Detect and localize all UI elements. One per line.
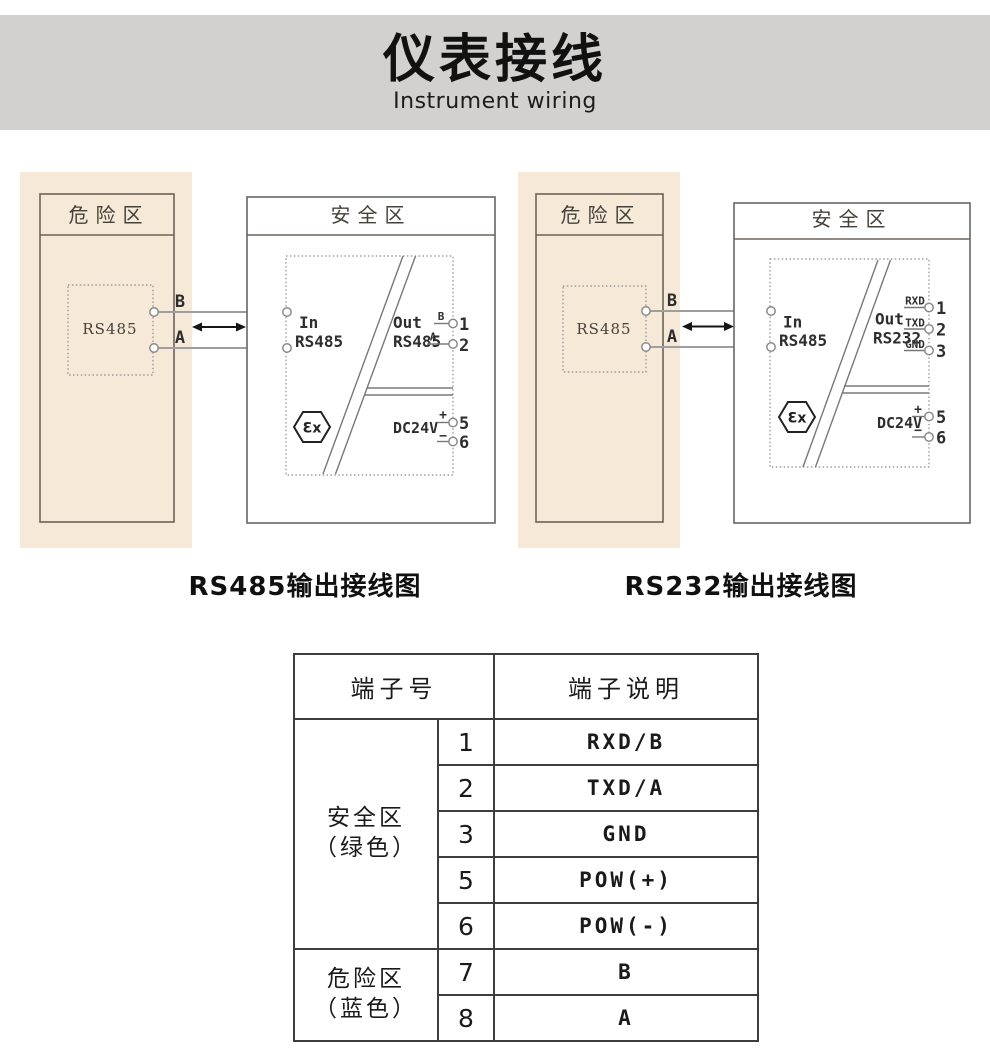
safe-zone-box: 安全区 [247, 197, 495, 523]
wire-a-label: A [667, 327, 677, 347]
danger-zone-group-cell: 危险区 （蓝色） [294, 949, 438, 1041]
output-label: Out [393, 313, 422, 332]
zone-name: 安全区 [295, 804, 437, 834]
svg-text:Ɛx: Ɛx [788, 411, 807, 427]
terminal-description: GND [494, 811, 758, 857]
terminal-number: 5 [438, 857, 494, 903]
zone-name: 危险区 [295, 965, 437, 995]
table-row: 安全区 （绿色） 1 RXD/B [294, 719, 758, 765]
terminal-description: POW(+) [494, 857, 758, 903]
rs232-output-wiring-diagram: 危险区 RS485 B A 7 8 安全区 In RS485 Out RS232… [500, 168, 990, 560]
hazard-zone-highlight [20, 172, 192, 548]
power-terminal-6-number: 6 [459, 433, 469, 453]
terminal-number: 2 [438, 765, 494, 811]
output-terminal-3-circle [925, 346, 933, 354]
terminal-number: 7 [438, 949, 494, 995]
terminal-number-header: 端子号 [294, 654, 494, 719]
output-terminal-1-number: 1 [459, 315, 469, 335]
terminal-number: 6 [438, 903, 494, 949]
table-header-row: 端子号 端子说明 [294, 654, 758, 719]
safe-zone-border [734, 203, 970, 523]
zone-color-note: （绿色） [295, 834, 437, 864]
power-plus-label: + [439, 408, 447, 423]
safe-zone-box: 安全区 [734, 203, 970, 523]
output-signal-gnd-label: GND [905, 338, 925, 351]
page-subtitle: Instrument wiring [0, 89, 990, 114]
svg-text:Ɛx: Ɛx [303, 421, 322, 437]
output-terminal-2-circle [449, 340, 457, 348]
power-terminal-6-circle [449, 437, 457, 445]
rs485-output-wiring-diagram: 危险区 RS485 B A 7 8 安全区 In RS485 Out RS485… [10, 168, 500, 560]
output-terminal-2-number: 2 [936, 321, 946, 341]
terminal-description: RXD/B [494, 719, 758, 765]
input-label: In [783, 313, 802, 332]
output-terminal-1-circle [925, 303, 933, 311]
danger-zone-label: 危险区 [69, 203, 150, 227]
output-signal-txd-label: TXD [905, 317, 925, 330]
power-terminal-6-number: 6 [936, 429, 946, 449]
input-terminal-8-circle [767, 343, 775, 351]
terminal-description-header: 端子说明 [494, 654, 758, 719]
output-terminal-1-number: 1 [936, 299, 946, 319]
power-minus-label: − [914, 424, 922, 439]
power-terminal-5-number: 5 [459, 414, 469, 434]
safe-zone-group-cell: 安全区 （绿色） [294, 719, 438, 949]
field-device-label: RS485 [576, 320, 631, 338]
safe-zone-label: 安全区 [812, 207, 893, 231]
bidirectional-arrow-icon [682, 322, 734, 331]
wire-b-label: B [175, 292, 185, 312]
wire-b-label: B [667, 291, 677, 311]
terminal-description: A [494, 995, 758, 1041]
danger-zone-label: 危险区 [561, 203, 642, 227]
terminal-description: TXD/A [494, 765, 758, 811]
table-row: 危险区 （蓝色） 7 B [294, 949, 758, 995]
terminal-description-table: 端子号 端子说明 安全区 （绿色） 1 RXD/B 2 TXD/A 3 GND … [293, 653, 759, 1042]
power-terminal-5-circle [925, 412, 933, 420]
terminal-description: POW(-) [494, 903, 758, 949]
power-terminal-6-circle [925, 433, 933, 441]
device-terminal-b-circle [150, 308, 158, 316]
page-header-band: 仪表接线 Instrument wiring [0, 15, 990, 130]
rs485-diagram-caption: RS485输出接线图 [188, 566, 421, 603]
output-terminal-3-number: 3 [936, 342, 946, 362]
page-title: 仪表接线 [0, 33, 990, 88]
bidirectional-arrow-icon [192, 323, 246, 332]
input-type-label: RS485 [295, 332, 343, 351]
output-signal-rxd-label: RXD [905, 295, 925, 308]
terminal-number: 8 [438, 995, 494, 1041]
output-terminal-1-circle [449, 319, 457, 327]
wire-a-label: A [175, 328, 185, 348]
power-plus-label: + [914, 403, 922, 418]
output-signal-a-label: A [430, 331, 437, 344]
rs232-diagram-caption: RS232输出接线图 [624, 566, 857, 603]
device-terminal-a-circle [642, 343, 650, 351]
terminal-number: 1 [438, 719, 494, 765]
safe-zone-border [247, 197, 495, 523]
input-label: In [299, 313, 318, 332]
input-terminal-7-circle [767, 307, 775, 315]
device-terminal-b-circle [642, 307, 650, 315]
output-terminal-2-number: 2 [459, 336, 469, 356]
power-label: DC24V [393, 419, 438, 437]
terminal-number: 3 [438, 811, 494, 857]
power-terminal-5-number: 5 [936, 408, 946, 428]
hazard-zone-highlight [518, 172, 680, 548]
input-terminal-7-circle [283, 308, 291, 316]
safe-zone-label: 安全区 [331, 203, 412, 227]
field-device-label: RS485 [82, 320, 137, 338]
terminal-description: B [494, 949, 758, 995]
input-type-label: RS485 [779, 331, 827, 350]
output-label: Out [875, 310, 904, 329]
input-terminal-8-circle [283, 344, 291, 352]
output-signal-b-label: B [438, 310, 445, 323]
power-terminal-5-circle [449, 418, 457, 426]
device-terminal-a-circle [150, 344, 158, 352]
output-terminal-2-circle [925, 325, 933, 333]
zone-color-note: （蓝色） [295, 995, 437, 1025]
